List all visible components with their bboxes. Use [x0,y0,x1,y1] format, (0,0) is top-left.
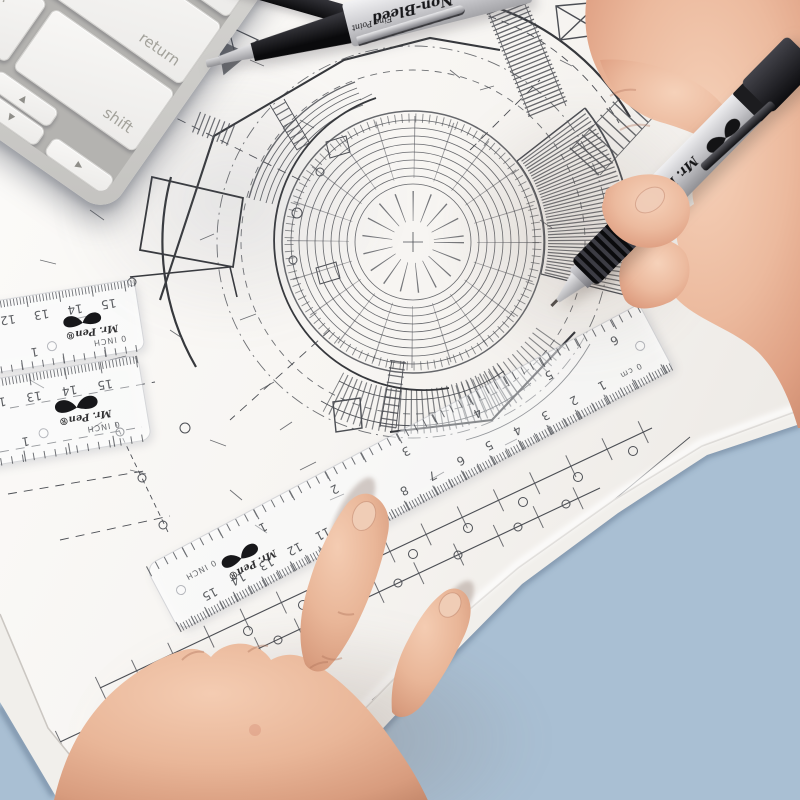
bottom-hand-back [52,644,432,800]
bottom-index-finger [300,494,388,672]
knuckle-red-spot [249,724,261,736]
bottom-hand [0,0,800,800]
desk-scene: 12 13 14 15 Mr. Pen® 0 INCH 1 12 13 14 1… [0,0,800,800]
